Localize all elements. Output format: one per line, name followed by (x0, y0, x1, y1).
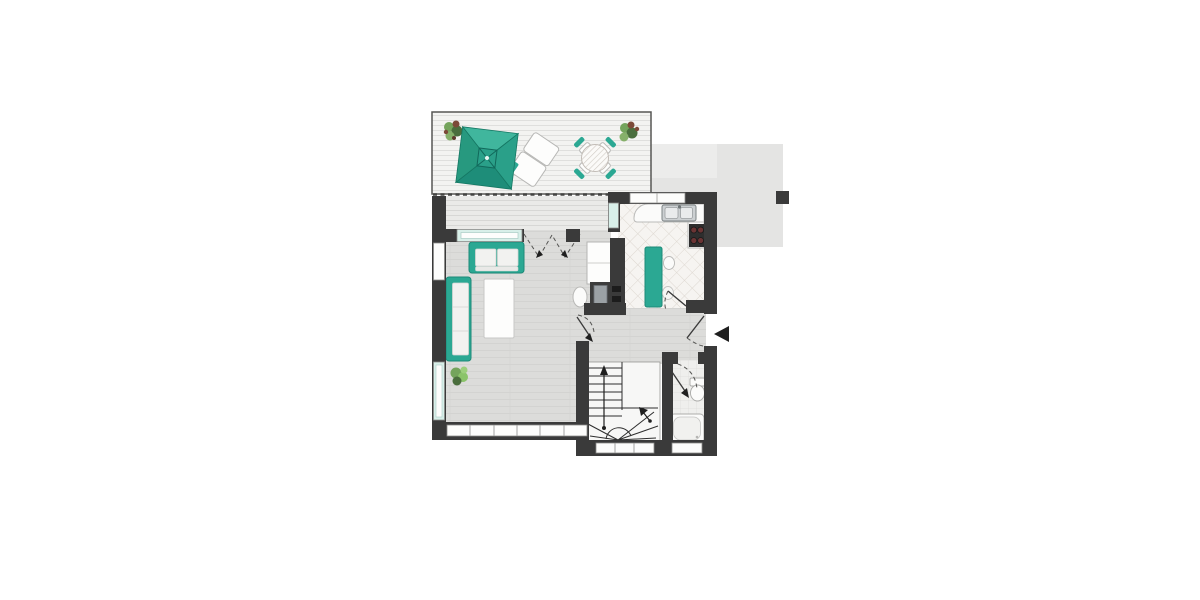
stove-burners (689, 224, 705, 247)
dining-table (582, 145, 609, 172)
toilet (690, 378, 705, 401)
kitchen-island (645, 247, 662, 307)
window-band-stairs (596, 443, 654, 453)
entrance-arrow (714, 326, 729, 342)
sofa (446, 277, 471, 361)
window-band-south (447, 425, 587, 436)
bathtub (670, 414, 704, 443)
terrace (432, 112, 651, 195)
loveseat (469, 242, 524, 273)
balcony-deck (446, 196, 608, 230)
window-kitchen-balcony (609, 203, 619, 228)
bar-stool (663, 287, 674, 300)
wall-bathroom-west (662, 352, 673, 444)
window-bathroom-south (672, 443, 702, 453)
coffee-table (484, 279, 514, 338)
kitchen-sink (662, 205, 696, 221)
wall-mounted-unit (612, 286, 621, 292)
wall-hall-north (584, 303, 626, 315)
floor-plan-canvas (0, 0, 1200, 600)
window-west-upper (434, 243, 445, 280)
parasol (456, 127, 518, 189)
window-kitchen-north (630, 193, 685, 203)
wall-mounted-unit (612, 296, 621, 302)
staircase (588, 362, 660, 444)
wall-east-upper (704, 192, 717, 314)
bar-stool (664, 257, 675, 270)
floor-plan-drawing (0, 0, 1200, 600)
roof-wall-stub (776, 191, 789, 204)
